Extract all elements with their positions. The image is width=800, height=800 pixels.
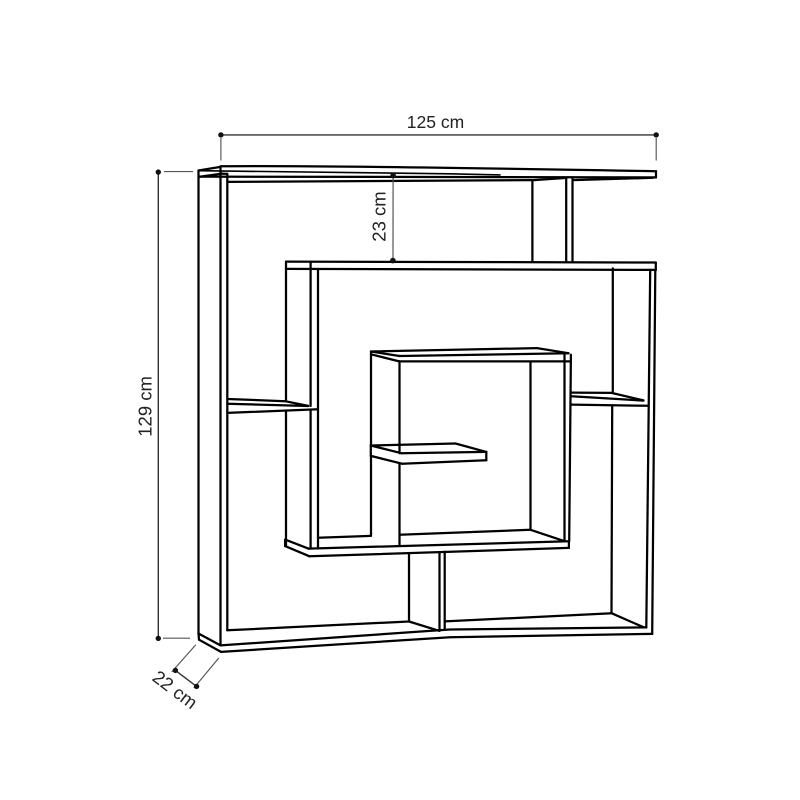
svg-text:125 cm: 125 cm: [407, 112, 464, 132]
svg-text:23 cm: 23 cm: [369, 191, 390, 241]
svg-text:129 cm: 129 cm: [135, 376, 156, 437]
